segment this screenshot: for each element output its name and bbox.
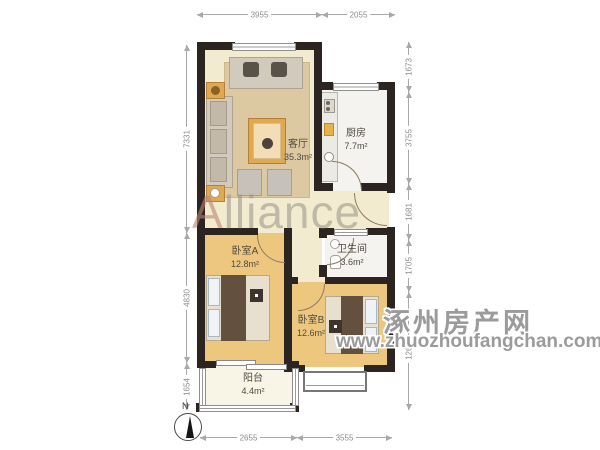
dim-bottom-1: 2655 xyxy=(200,437,297,438)
bathroom-label: 卫生间 3.6m² xyxy=(337,244,367,268)
bed-a-blanket xyxy=(221,275,246,341)
dim-right-3: 1681 xyxy=(408,184,409,240)
kitchen-appliance-icon xyxy=(324,123,334,136)
balcony-window-right xyxy=(292,368,299,406)
sofa-left-cushion xyxy=(210,157,227,182)
teapot-icon xyxy=(262,138,273,149)
room-name: 厨房 xyxy=(344,128,367,141)
wall-bathroom-top-right xyxy=(366,228,395,235)
room-area: 12.8m² xyxy=(231,259,259,270)
bay-window-sill-line xyxy=(306,385,364,386)
dim-value: 3555 xyxy=(333,434,357,443)
room-area: 12.6m² xyxy=(297,328,325,339)
bedroom-b-label: 卧室B 12.6m² xyxy=(297,315,325,339)
room-name: 卫生间 xyxy=(337,244,367,257)
wall-right-upper xyxy=(387,82,395,193)
balcony-window-left xyxy=(199,368,206,406)
side-table-lamp-icon xyxy=(211,86,220,95)
dim-value: 3755 xyxy=(405,126,414,150)
wall-kitchen-bottom-right xyxy=(361,183,395,191)
room-area: 7.7m² xyxy=(344,141,367,152)
wall-bedroom-b-bottom-right xyxy=(364,365,395,372)
wall-kitchen-left xyxy=(314,90,322,183)
balcony-label: 阳台 4.4m² xyxy=(241,373,264,397)
wall-bedroom-b-top-right xyxy=(325,277,395,284)
sofa-left-cushion xyxy=(210,129,227,154)
bed-a-pillow xyxy=(208,309,220,337)
floor-plan-canvas: 客厅 35.3m² 厨房 7.7m² 卧室A 12.8m² 卫生间 3.6m² … xyxy=(0,0,600,450)
site-url-watermark: www.zhuozhoufangchan.com xyxy=(336,331,600,353)
dim-value: 1705 xyxy=(405,254,414,278)
sofa-cushion xyxy=(271,62,287,77)
cooktop-burner-icon xyxy=(326,101,330,105)
bed-b-pillow xyxy=(365,299,377,324)
dim-value: 3955 xyxy=(248,11,272,20)
room-name: 卧室A xyxy=(231,246,259,259)
room-area: 35.3m² xyxy=(284,152,312,163)
living-room-window xyxy=(232,43,296,51)
wall-bedroom-a-right xyxy=(284,228,292,368)
dim-value: 2055 xyxy=(347,11,371,20)
alliance-watermark: Alliance xyxy=(192,185,361,239)
dim-left-2: 4830 xyxy=(186,233,187,363)
wall-balcony-junction xyxy=(197,361,216,368)
wall-bedroom-b-top-left xyxy=(284,277,298,284)
dim-right-4: 1705 xyxy=(408,240,409,292)
dim-top-2: 2055 xyxy=(322,14,395,15)
bed-a-pillow xyxy=(208,278,220,306)
cooktop-burner-icon xyxy=(326,107,330,111)
sofa-top xyxy=(229,57,303,89)
wall-bathroom-left-lower xyxy=(319,265,327,277)
compass-needle-icon xyxy=(186,416,194,438)
wall-kitchen-top-left xyxy=(314,82,333,90)
dim-left-1: 7331 xyxy=(186,45,187,233)
dim-value: 1654 xyxy=(183,375,192,399)
living-room-label: 客厅 35.3m² xyxy=(284,139,312,163)
wall-top-left xyxy=(197,42,235,50)
bed-b-tv-dot-icon xyxy=(334,325,337,328)
dim-value: 1673 xyxy=(405,55,414,79)
dim-value: 2655 xyxy=(237,434,261,443)
room-area: 4.4m² xyxy=(241,386,264,397)
dim-top-1: 3955 xyxy=(197,14,322,15)
room-name: 卧室B xyxy=(297,315,325,328)
dim-right-1: 1673 xyxy=(408,42,409,92)
dim-bottom-2: 3555 xyxy=(297,437,392,438)
balcony-sliding-door-leaf xyxy=(246,364,287,370)
dim-right-2: 3755 xyxy=(408,92,409,184)
bed-a-tv-dot-icon xyxy=(255,294,258,297)
dim-value: 7331 xyxy=(183,127,192,151)
bay-window xyxy=(303,371,367,392)
sofa-left-cushion xyxy=(210,101,227,126)
kitchen-label: 厨房 7.7m² xyxy=(344,128,367,152)
balcony-window-bottom xyxy=(199,405,296,412)
bedroom-a-label: 卧室A 12.8m² xyxy=(231,246,259,270)
kitchen-window xyxy=(333,83,379,91)
compass-north-label: N xyxy=(182,401,189,411)
room-area: 3.6m² xyxy=(337,257,367,268)
room-name: 客厅 xyxy=(284,139,312,152)
dim-value: 4830 xyxy=(183,286,192,310)
room-name: 阳台 xyxy=(241,373,264,386)
dim-value: 1681 xyxy=(405,200,414,224)
sofa-cushion xyxy=(243,62,259,77)
